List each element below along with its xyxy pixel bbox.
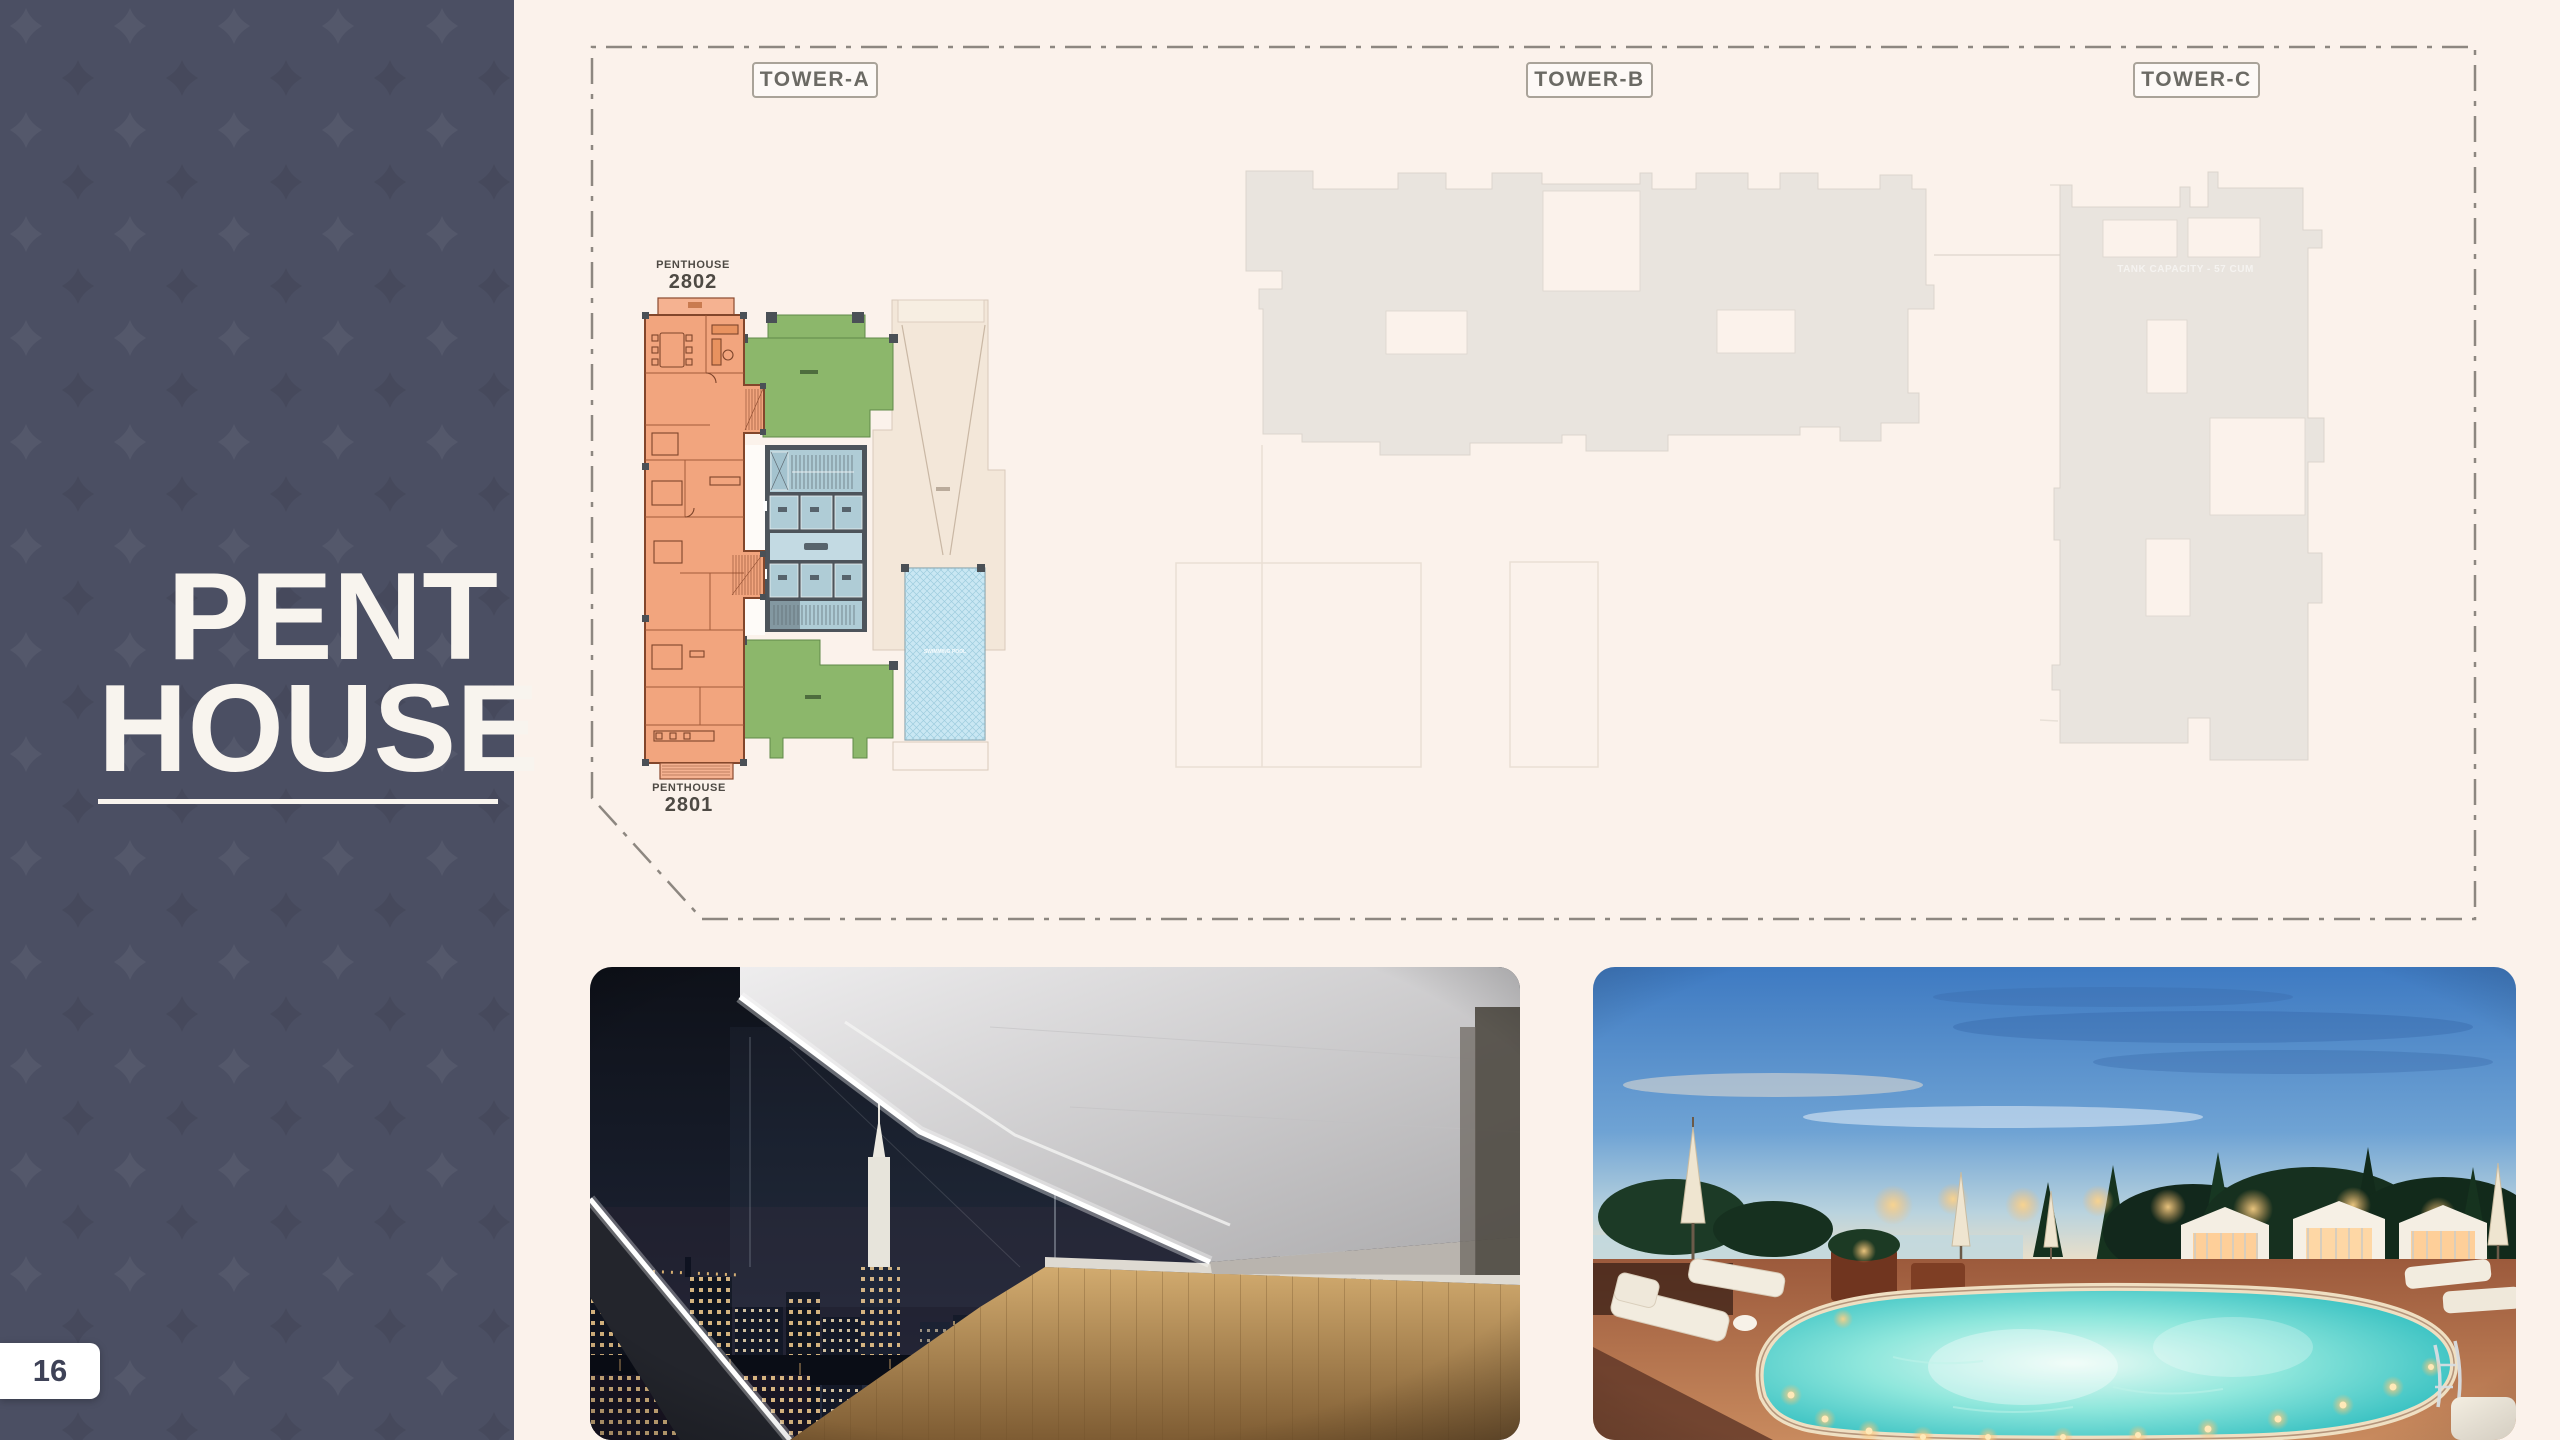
page-title: PENT HOUSE <box>98 562 498 804</box>
tower-b-label: TOWER-B <box>1526 62 1653 98</box>
tower-c-label: TOWER-C <box>2133 62 2260 98</box>
page-number: 16 <box>33 1353 67 1389</box>
unit-label-2801: PENTHOUSE 2801 <box>609 783 769 816</box>
tower-c-silhouette <box>2040 160 2350 780</box>
unit-number: 2801 <box>609 795 769 816</box>
tower-c-label-text: TOWER-C <box>2141 68 2251 92</box>
unit-name: PENTHOUSE <box>613 260 773 272</box>
swimming-pool: SWIMMING POOL <box>901 564 985 740</box>
page-number-badge: 16 <box>0 1343 100 1399</box>
floor-plan-tower-a: SWIMMING POOL <box>640 255 1010 825</box>
page-title-line1: PENT <box>98 562 498 674</box>
terrace-green-bottom <box>738 636 898 758</box>
photo-rooftop-pool <box>1593 967 2516 1440</box>
sidebar: PENT HOUSE 16 <box>0 0 514 1440</box>
service-core <box>763 445 867 632</box>
tower-b-silhouette <box>1240 165 2070 465</box>
page-title-line2: HOUSE <box>98 674 498 786</box>
brochure-page: PENT HOUSE 16 TOWER-A TOWER-B TOWER-C <box>0 0 2560 1440</box>
unit-name: PENTHOUSE <box>609 783 769 795</box>
tower-c-tank-note: TANK CAPACITY - 57 CUM <box>2098 264 2273 275</box>
corridor <box>744 445 765 635</box>
pool-label: SWIMMING POOL <box>924 649 966 655</box>
tower-b-label-text: TOWER-B <box>1534 68 1644 92</box>
unit-label-2802: PENTHOUSE 2802 <box>613 260 773 293</box>
unit-number: 2802 <box>613 272 773 293</box>
tower-a-label-text: TOWER-A <box>760 68 870 92</box>
photo-penthouse-interior <box>590 967 1520 1440</box>
tower-a-label: TOWER-A <box>752 62 878 98</box>
ghost-floor-outlines <box>1150 430 1910 790</box>
